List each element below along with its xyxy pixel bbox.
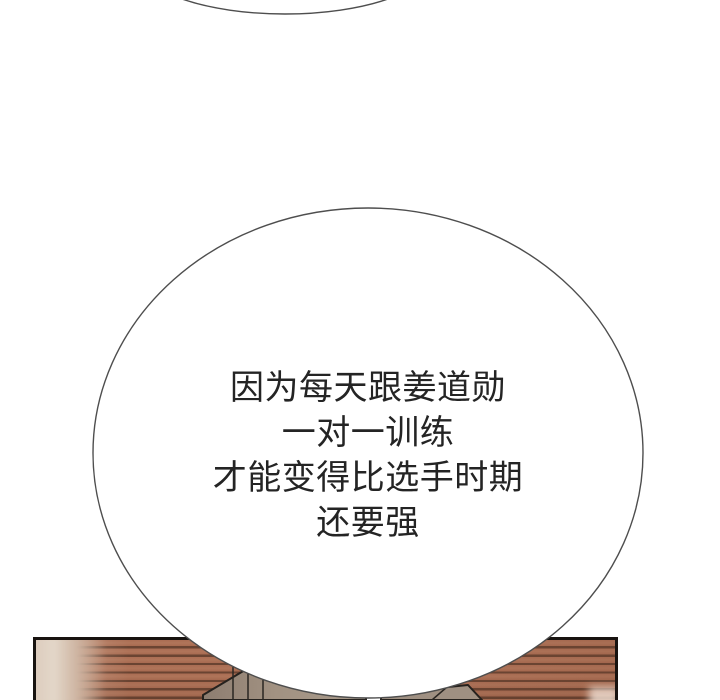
speech-bubble-text: 因为每天跟姜道勋 一对一训练 才能变得比选手时期 还要强 <box>93 208 643 698</box>
previous-speech-bubble-edge <box>135 0 435 14</box>
speech-line: 还要强 <box>316 501 420 546</box>
speech-line: 因为每天跟姜道勋 <box>230 366 506 411</box>
comic-page: 因为每天跟姜道勋 一对一训练 才能变得比选手时期 还要强 <box>0 0 720 700</box>
speech-line: 一对一训练 <box>282 411 455 456</box>
speech-line: 才能变得比选手时期 <box>213 456 524 501</box>
